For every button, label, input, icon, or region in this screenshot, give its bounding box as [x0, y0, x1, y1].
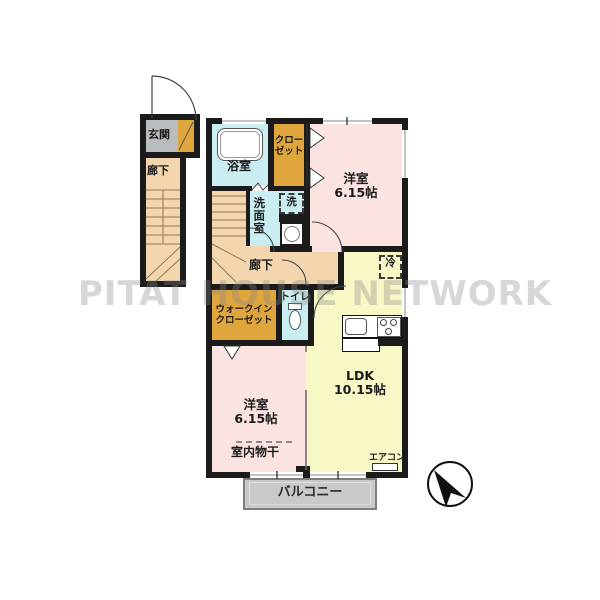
stove-burner-3 [385, 328, 392, 335]
bath-door-opening [252, 186, 268, 191]
stove-burner-1 [380, 319, 387, 326]
aircon-label: エアコン [369, 453, 405, 463]
drying-label: 室内物干 [231, 446, 279, 460]
closet-label: クロー ゼット [273, 136, 305, 158]
closet-bedroom1-wall [304, 188, 310, 246]
compass [427, 461, 473, 507]
shoe-cabinet [178, 120, 194, 152]
corridor-left-label: 廊下 [147, 165, 169, 178]
stairs-side-wall [246, 191, 250, 246]
kitchen-sink [345, 318, 367, 335]
bedroom1-top-window [323, 118, 372, 124]
kitchen-side-wall [378, 338, 402, 346]
corridor-label: 廊下 [249, 259, 273, 273]
wic-bedroom2-wall [206, 340, 314, 346]
bath-label: 浴室 [216, 160, 262, 174]
bedroom1-right-window [402, 130, 408, 178]
balcony-label: バルコニー [260, 486, 360, 501]
laundry-label: 洗 [279, 196, 304, 208]
vanity-basin [284, 226, 300, 242]
bedroom2-balcony-door [250, 472, 303, 478]
aircon-unit [372, 463, 398, 471]
entrance-label: 玄関 [148, 129, 170, 142]
bedroom1-door-opening [312, 246, 342, 252]
washroom-label: 洗面室 [252, 197, 265, 249]
bath-window [222, 118, 266, 124]
bedroom2-label: 洋室 6.15帖 [216, 398, 296, 427]
bedroom1-label: 洋室 6.15帖 [320, 172, 392, 201]
bathtub-inner [220, 131, 260, 158]
drying-pole [236, 441, 292, 443]
ldk-label: LDK 10.15帖 [327, 369, 393, 398]
watermark: PITAT HOUSE NETWORK [78, 274, 552, 314]
stove-burner-2 [390, 319, 397, 326]
washer-wall [279, 214, 304, 222]
kitchen-cabinet [342, 338, 380, 352]
unit-stairs [212, 191, 250, 252]
washroom-corridor-wall [270, 246, 308, 252]
floor-plan: 玄関 廊下 浴室 クロー ゼット 洋室 6.15帖 洗 洗面室 廊下 ウォークイ… [0, 0, 600, 600]
ldk-balcony-door [310, 472, 366, 478]
refrigerator-label: 冷 [379, 257, 402, 269]
